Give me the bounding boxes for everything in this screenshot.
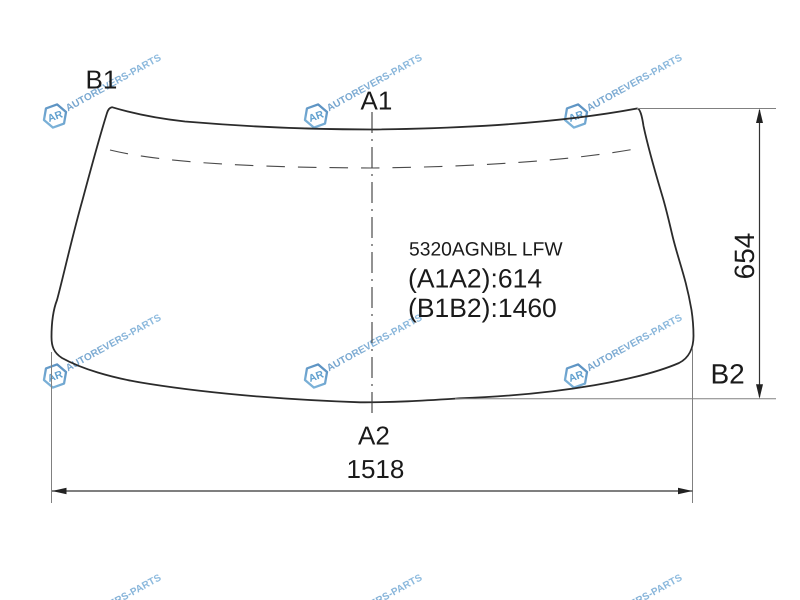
- svg-text:654: 654: [729, 233, 760, 280]
- svg-text:B2: B2: [711, 359, 745, 390]
- svg-text:1518: 1518: [347, 454, 405, 484]
- svg-text:(B1B2):1460: (B1B2):1460: [408, 293, 557, 323]
- svg-text:(A1A2):614: (A1A2):614: [408, 264, 542, 294]
- svg-text:A1: A1: [361, 86, 393, 116]
- svg-text:A2: A2: [358, 421, 390, 451]
- svg-text:5320AGNBL LFW: 5320AGNBL LFW: [409, 240, 563, 261]
- svg-text:B1: B1: [86, 65, 118, 95]
